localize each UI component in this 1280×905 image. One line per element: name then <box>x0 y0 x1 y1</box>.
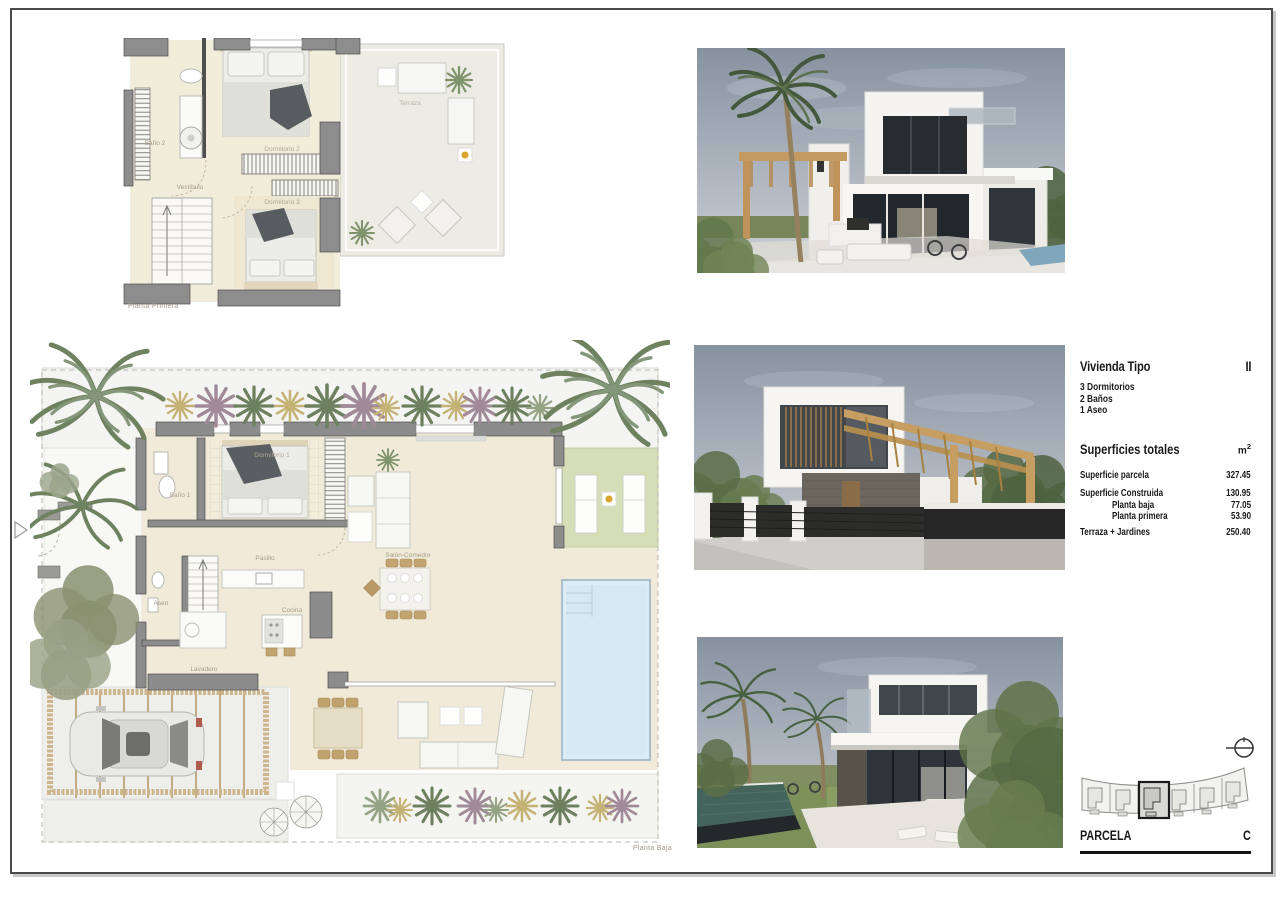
info-panel: Vivienda Tipo II 3 Dormitorios 2 Baños 1… <box>1080 358 1251 538</box>
surface-row-planta-primera: Planta primera 53.90 <box>1080 511 1251 523</box>
feature-list: 3 Dormitorios 2 Baños 1 Aseo <box>1080 382 1251 417</box>
room-label-terraza: Terraza <box>399 100 421 107</box>
room-label-dormitorio3: Dormitorio 3 <box>264 199 300 206</box>
surface-table: Superficie parcela 327.45 Superficie Con… <box>1080 470 1251 539</box>
room-label-vestibulo: Vestíbulo <box>177 184 204 191</box>
surface-row-construida: Superficie Construida 130.95 <box>1080 488 1251 500</box>
floorplan-planta-baja: Baño 1 Dormitorio 1 Pasillo Aseo Lavader… <box>30 340 670 865</box>
feature-aseo: 1 Aseo <box>1080 405 1107 417</box>
vivienda-type-code: II <box>1245 358 1251 374</box>
parcela-code: C <box>1243 828 1251 843</box>
plan-caption-planta-baja: Planta Baja <box>560 845 672 852</box>
room-label-pasillo: Pasillo <box>255 555 275 562</box>
room-label-bano1: Baño 1 <box>170 492 191 499</box>
vivienda-tipo-title: Vivienda Tipo <box>1080 358 1150 374</box>
floorplan-planta-primera: Baño 2 Vestíbulo Dormitorio 2 Dormitorio… <box>122 38 507 313</box>
render-exterior-pool-view <box>697 637 1063 853</box>
parcela-site-plan <box>1078 762 1252 831</box>
surface-row-terraza-jardines: Terraza + Jardines 250.40 <box>1080 527 1251 539</box>
room-label-dormitorio1: Dormitorio 1 <box>254 452 290 459</box>
room-label-dormitorio2: Dormitorio 2 <box>264 146 300 153</box>
unit-m2: m2 <box>1238 442 1251 456</box>
render-exterior-terrace-view <box>697 48 1065 278</box>
room-label-salon-comedor: Salón-Comedor <box>385 552 431 559</box>
surface-row-parcela: Superficie parcela 327.45 <box>1080 470 1251 482</box>
north-compass-icon <box>1222 735 1258 761</box>
room-label-cocina: Cocina <box>282 607 303 614</box>
left-edge-triangle-marker <box>12 520 30 540</box>
room-label-bano2: Baño 2 <box>145 140 166 147</box>
plan-caption-planta-primera: Planta Primera <box>128 303 179 310</box>
car-top-view <box>70 706 204 782</box>
surfaces-heading: Superficies totales <box>1080 441 1180 457</box>
render-exterior-street-view <box>694 345 1065 575</box>
room-label-lavadero: Lavadero <box>190 666 217 673</box>
room-label-aseo: Aseo <box>154 600 169 607</box>
parcela-label: PARCELA <box>1080 828 1131 843</box>
parcela-label-row: PARCELA C <box>1080 828 1251 854</box>
surface-row-planta-baja: Planta baja 77.05 <box>1080 500 1251 512</box>
presentation-sheet: Baño 2 Vestíbulo Dormitorio 2 Dormitorio… <box>0 0 1280 905</box>
